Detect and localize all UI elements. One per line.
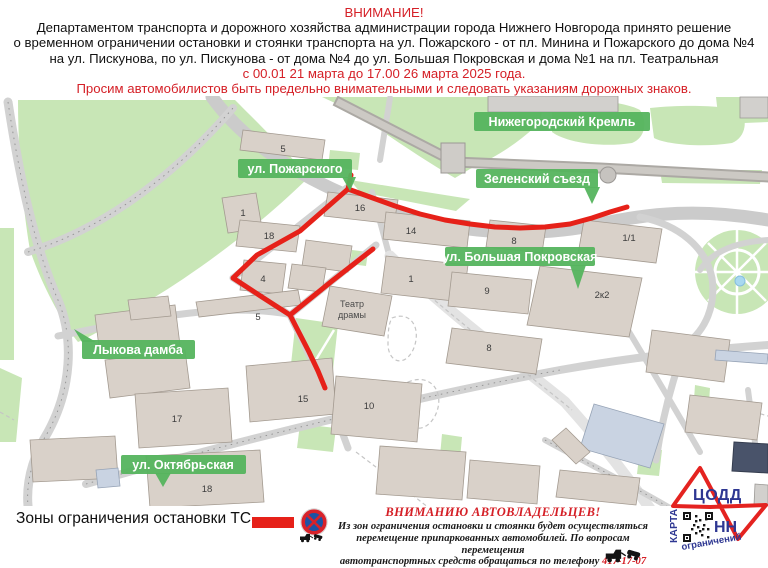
street-label-kremlin: Нижегородский Кремль [474,112,650,131]
svg-text:ул. Пожарского: ул. Пожарского [247,162,342,176]
building-number: 9 [484,286,489,297]
header-line: Департаментом транспорта и дорожного хоз… [0,20,768,35]
svg-text:Лыкова дамба: Лыкова дамба [93,343,184,357]
building-number: 4 [260,274,265,285]
logo-org: ЦОДД [693,487,742,504]
svg-text:ул. Большая Покровская: ул. Большая Покровская [443,250,598,264]
building-number: 14 [406,226,417,237]
building-number: 8 [486,343,491,354]
header-line: о временном ограничении остановки и стоя… [0,35,768,50]
theater-label: драмы [338,310,366,320]
svg-text:Зеленский съезд: Зеленский съезд [484,172,590,186]
owners-notice-title: ВНИМАНИЮ АВТОВЛАДЕЛЬЦЕВ! [333,505,653,520]
svg-text:ул. Октябрьская: ул. Октябрьская [132,458,234,472]
building-number: 1 [408,274,413,285]
notice-header: ВНИМАНИЕ! Департаментом транспорта и дор… [0,0,768,96]
building-number: 1/1 [622,233,635,244]
header-caution-line: Просим автомобилистов быть предельно вни… [0,81,768,96]
logo-karta: КАРТА [668,508,680,543]
svg-text:Нижегородский Кремль: Нижегородский Кремль [489,115,636,129]
poster: 5 1 16 18 4 5 14 8 1/1 1 9 2к2 8 17 15 1… [0,0,768,568]
building-number: 5 [280,144,285,155]
building-number: 10 [364,401,375,412]
header-line: на ул. Пискунова, по ул. Пискунова - от … [0,51,768,66]
building-number: 16 [355,203,366,214]
legend-red-bar [252,517,294,528]
building-number: 18 [202,484,213,495]
building-number: 15 [298,394,309,405]
building-number: 2к2 [595,290,610,301]
building-number: 5 [255,312,260,323]
building-number: 8 [511,236,516,247]
owners-notice-line: Из зон ограничения остановки и стоянки б… [333,521,653,533]
legend-label: Зоны ограничения остановки ТС - [16,510,261,528]
header-date-line: с 00.01 21 марта до 17.00 26 марта 2025 … [0,66,768,81]
building-number: 17 [172,414,183,425]
header-title: ВНИМАНИЕ! [0,5,768,20]
dark-building [732,442,768,473]
street-label-zelensky: Зеленский съезд [476,169,600,204]
building-number: 1 [240,208,245,219]
theater-label: Театр [340,299,364,309]
building-number: 18 [264,231,275,242]
